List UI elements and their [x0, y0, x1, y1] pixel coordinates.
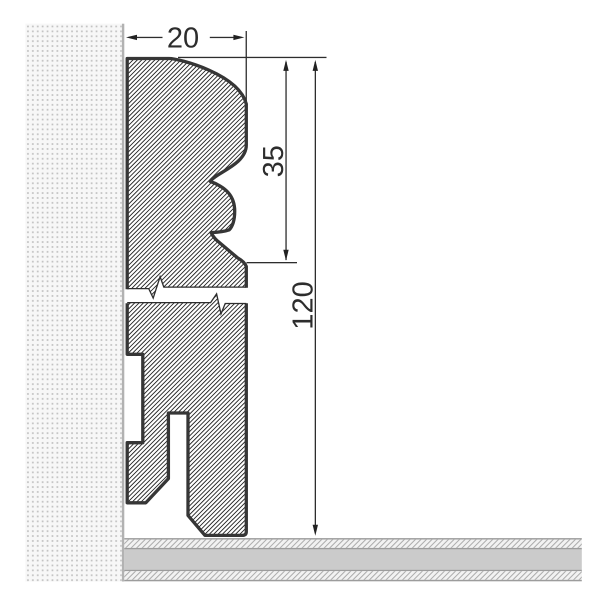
svg-text:20: 20 — [167, 22, 199, 54]
svg-text:35: 35 — [258, 145, 290, 177]
svg-text:120: 120 — [288, 281, 320, 329]
